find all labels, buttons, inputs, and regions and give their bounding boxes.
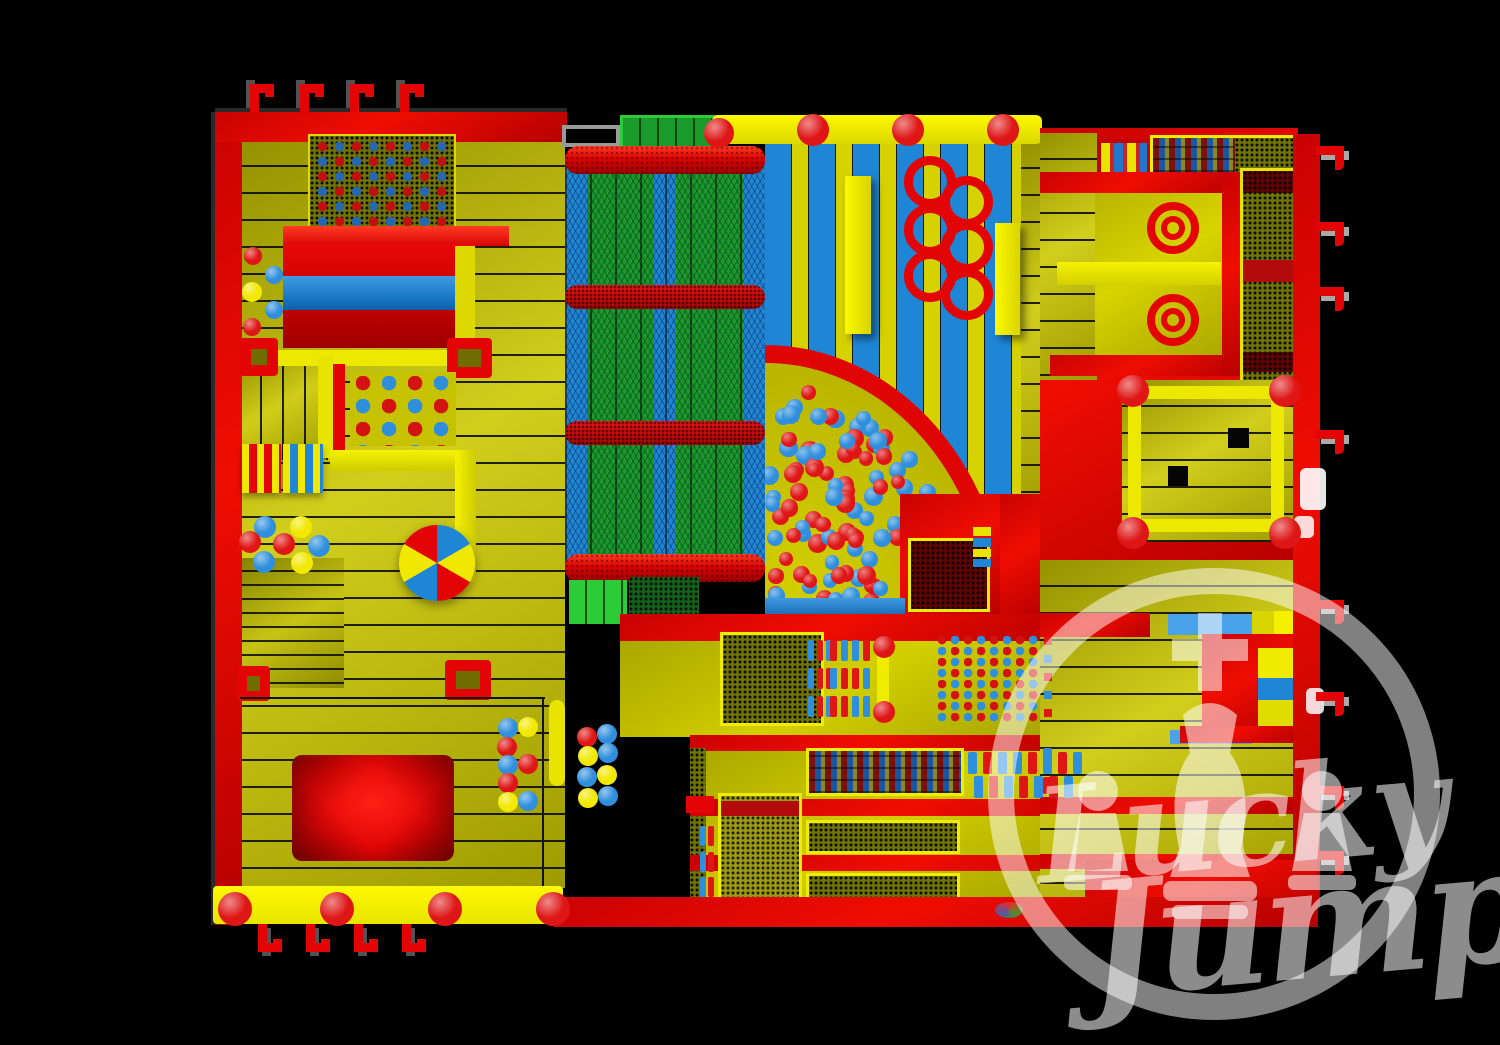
pit-ball <box>815 517 830 532</box>
pit-ball <box>827 532 845 550</box>
peg-bar <box>841 668 848 689</box>
peg-bar <box>974 776 983 798</box>
peg-bar <box>700 877 706 897</box>
ball <box>704 118 734 148</box>
pit-ball <box>857 566 876 585</box>
ball <box>265 266 283 284</box>
light-net-red-band <box>721 801 799 816</box>
floor-hole-frame <box>445 660 491 700</box>
wall-hook <box>315 84 324 97</box>
target-ring-inner <box>1161 216 1185 240</box>
pit-ball <box>784 465 802 483</box>
pit-ball <box>859 511 874 526</box>
net-panel-dots <box>310 136 450 228</box>
ball <box>873 701 895 723</box>
ball <box>518 717 538 737</box>
yellow-wall-v <box>318 356 333 458</box>
watermark-text-line2: Jump <box>1079 826 1500 1022</box>
peg-bar <box>708 852 714 872</box>
ball <box>239 531 261 553</box>
pit-ball <box>891 475 905 489</box>
pit-ball <box>781 499 798 516</box>
platform-pillar <box>455 246 475 348</box>
wall-hook <box>321 939 330 952</box>
peg-bar <box>852 668 859 689</box>
ball <box>320 892 354 926</box>
peg-bar <box>863 640 870 661</box>
roller-net-body <box>565 160 765 564</box>
structure-chip <box>973 538 991 547</box>
yellow-divider <box>549 700 565 786</box>
peg-bar <box>808 696 814 717</box>
wall-hook <box>417 939 426 952</box>
floor-hole-frame <box>240 338 278 376</box>
stripe-raised-beam <box>995 223 1020 335</box>
ball <box>1117 375 1149 407</box>
target-frame-top <box>1040 172 1242 193</box>
floor-hatch <box>1228 428 1249 448</box>
target-step-band <box>1057 262 1221 285</box>
ball <box>273 533 295 555</box>
peg-bar <box>817 640 823 661</box>
pit-ball <box>765 466 779 485</box>
bottom-bar-left <box>213 886 563 924</box>
dot-panel <box>350 372 456 446</box>
pit-ball <box>825 488 842 505</box>
peg-bar <box>830 668 837 689</box>
wall-hook <box>1335 146 1344 170</box>
pit-ball <box>873 479 888 494</box>
ball <box>498 792 518 812</box>
wall-hook <box>1335 222 1344 246</box>
peg-bar <box>830 640 837 661</box>
ball <box>1269 375 1301 407</box>
peg-bar <box>841 696 848 717</box>
peg-bar <box>808 640 814 661</box>
ball <box>1269 517 1301 549</box>
peg-bar <box>708 826 714 846</box>
floor-hatch <box>1168 466 1188 486</box>
ball <box>577 727 597 747</box>
pit-ball <box>859 451 874 466</box>
ball <box>598 786 618 806</box>
floor-hole-frame <box>237 666 270 701</box>
wall-hook <box>1335 287 1344 311</box>
ball <box>892 114 924 146</box>
peg-bar <box>830 696 837 717</box>
roller-mid-bar <box>565 285 765 309</box>
pit-ball <box>768 568 784 584</box>
pit-ball <box>831 567 847 583</box>
pit-ball <box>873 581 888 596</box>
ball <box>498 755 518 775</box>
roller-top-tube <box>565 146 765 174</box>
peg-bar <box>852 696 859 717</box>
peg-bar <box>708 877 714 897</box>
peg-bar <box>841 640 848 661</box>
peg-bar <box>817 668 823 689</box>
striped-block-blue <box>283 444 323 493</box>
ball <box>428 892 462 926</box>
ball <box>536 892 570 926</box>
wall-hook <box>1335 430 1344 454</box>
screen-panel <box>562 125 620 147</box>
room-line-h <box>240 697 545 699</box>
pit-ball <box>876 448 892 464</box>
pit-ball <box>801 385 816 400</box>
ball <box>578 788 598 808</box>
wall-hook <box>273 939 282 952</box>
small-red-block <box>686 796 714 813</box>
ball <box>597 765 617 785</box>
peg-bar <box>808 668 814 689</box>
target-frame-bottom <box>1050 355 1242 376</box>
white-glow <box>1300 468 1326 510</box>
pit-ball <box>781 432 796 447</box>
ball <box>498 718 518 738</box>
pit-ball <box>848 533 863 548</box>
structure-chip <box>973 549 991 557</box>
ball <box>290 516 312 538</box>
ball <box>265 301 283 319</box>
pit-ball <box>790 483 808 501</box>
room-line-v <box>542 697 544 889</box>
platform-ledge <box>283 226 509 246</box>
left-border-wall <box>215 112 242 925</box>
striped-block-red <box>242 444 281 493</box>
wall-hook <box>369 939 378 952</box>
ball <box>218 892 252 926</box>
stage: Lucky Jump <box>0 0 1500 1045</box>
peg-bar <box>700 852 706 872</box>
pit-right-patch <box>1000 494 1044 620</box>
pit-ball <box>856 411 870 425</box>
structure-chip <box>973 559 991 567</box>
net-column-band <box>1243 171 1294 193</box>
ball <box>518 754 538 774</box>
ball <box>242 282 262 302</box>
peg-bar <box>968 752 977 774</box>
structure-chip <box>973 527 991 536</box>
target-ring-inner <box>1161 308 1185 332</box>
pit-ball <box>873 529 891 547</box>
ball <box>577 767 597 787</box>
ball <box>518 791 538 811</box>
ball <box>597 724 617 744</box>
color-wheel <box>399 525 475 601</box>
ball <box>308 535 330 557</box>
peg-bar <box>700 826 706 846</box>
woven-panel <box>806 748 964 796</box>
ball <box>797 114 829 146</box>
pit-ball <box>782 405 800 423</box>
pit-ball <box>809 443 826 460</box>
ball <box>873 636 895 658</box>
platform-step-bar <box>272 350 448 366</box>
ball <box>244 247 262 265</box>
roller-mid-bar <box>565 421 765 445</box>
wall-hook <box>265 84 274 97</box>
red-post <box>333 364 345 450</box>
platform-slide-band <box>283 276 475 310</box>
wall-hook <box>365 84 374 97</box>
bottom-net-band <box>806 820 960 854</box>
square-tube-frame <box>1128 386 1284 532</box>
peg-bar <box>863 668 870 689</box>
peg-bar <box>817 696 823 717</box>
green-block <box>569 580 627 624</box>
ball <box>253 551 275 573</box>
ball <box>987 114 1019 146</box>
pit-ball <box>839 433 855 449</box>
ball <box>498 773 518 793</box>
net-column-band <box>1243 352 1294 372</box>
ball <box>243 318 261 336</box>
net-column-band-bright <box>1243 260 1294 282</box>
ball <box>1117 517 1149 549</box>
peg-bar <box>863 696 870 717</box>
wall-hook <box>415 84 424 97</box>
crash-mat <box>292 755 454 861</box>
peg-bar <box>852 640 859 661</box>
right-corner-planks <box>1040 133 1097 380</box>
pit-ball <box>779 552 793 566</box>
ball <box>497 737 517 757</box>
pit-ball <box>803 574 817 588</box>
ball <box>291 552 313 574</box>
ball <box>598 743 618 763</box>
tube-ring <box>941 268 993 320</box>
pit-ball <box>767 530 783 546</box>
ball <box>578 746 598 766</box>
pit-ball <box>765 496 780 511</box>
stripe-raised-beam <box>845 176 871 334</box>
